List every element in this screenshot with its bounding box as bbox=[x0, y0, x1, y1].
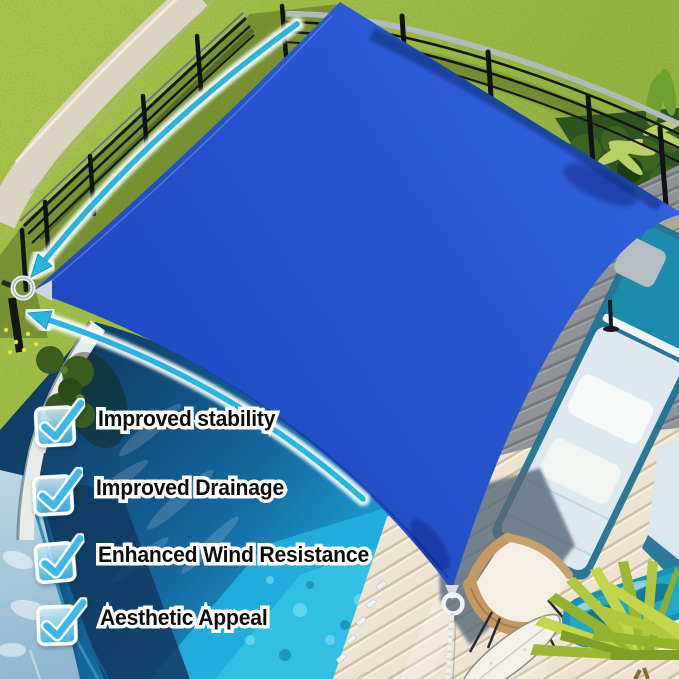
product-image: Improved stability Improved stability Im… bbox=[0, 0, 679, 679]
backyard-scene bbox=[0, 0, 679, 679]
